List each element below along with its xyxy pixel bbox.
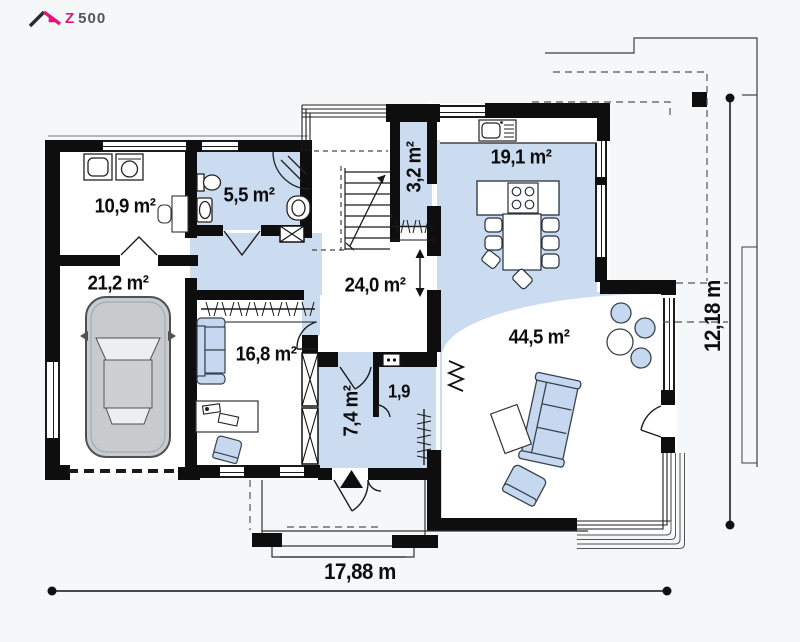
dimension-line-depth: [726, 94, 735, 530]
pouf-circles-icon: [607, 303, 655, 368]
brand-logo: Z500: [28, 8, 106, 28]
vent-shaft-icon: [302, 353, 318, 464]
room-label-hall: 24,0 m²: [345, 275, 406, 298]
room-label-vestibule: 7,4 m²: [341, 386, 364, 437]
entrance-arrow-icon: [340, 470, 363, 488]
terrace-column: [692, 92, 707, 107]
dimension-line-width: [48, 587, 672, 596]
kitchen-counter: [440, 118, 597, 143]
shower-icon: [273, 152, 310, 189]
vent-box-icon: [383, 354, 400, 366]
room-label-pantry: 3,2 m²: [404, 142, 427, 193]
roof-logo-icon: [28, 8, 62, 28]
dimension-label-width: 17,88 m: [324, 559, 396, 585]
washing-machine-icon: [116, 154, 143, 180]
terrace-decking: [577, 453, 685, 549]
car-icon: [80, 297, 176, 457]
room-label-utility: 10,9 m²: [95, 196, 156, 219]
room-label-closet: 1,9: [388, 382, 410, 403]
toilet-icon: [197, 174, 221, 191]
chimney-zigzag-icon: [449, 361, 463, 391]
room-label-office: 16,8 m²: [236, 344, 297, 367]
brand-number: 500: [78, 10, 106, 27]
desk-icon: [196, 401, 258, 432]
kitchen-island: [477, 181, 559, 215]
dining-table-set: [481, 214, 559, 290]
bidet-icon: [287, 196, 310, 220]
room-label-garage: 21,2 m²: [88, 273, 149, 296]
armchair-icon: [501, 464, 547, 507]
porch-column: [252, 533, 282, 547]
room-label-bathroom: 5,5 m²: [224, 185, 275, 208]
sofa-icon: [518, 372, 581, 468]
dimension-label-depth: 12,18 m: [700, 280, 726, 352]
utility-sink-icon: [84, 154, 112, 180]
floor-plan: Z500: [0, 0, 800, 642]
office-sofa-icon: [197, 318, 225, 384]
closet-hangers: [417, 409, 431, 465]
room-label-kitchen: 19,1 m²: [491, 147, 552, 170]
double-arrow-icon: [416, 249, 425, 297]
washbasin-icon: [197, 198, 212, 222]
brand-letter: Z: [65, 10, 75, 27]
vent-shaft-icon: [280, 226, 304, 242]
coffee-table-icon: [491, 404, 532, 453]
terrace-outline: [545, 38, 757, 467]
staircase: [312, 151, 390, 250]
corner-window-living: [577, 453, 671, 529]
corner-window-stairs: [300, 105, 386, 150]
office-chair-icon: [212, 435, 242, 464]
cloakroom-hangers: [390, 220, 437, 240]
porch-column: [392, 535, 438, 548]
room-label-living-room: 44,5 m²: [509, 327, 570, 350]
utility-desk-icon: [158, 196, 188, 232]
